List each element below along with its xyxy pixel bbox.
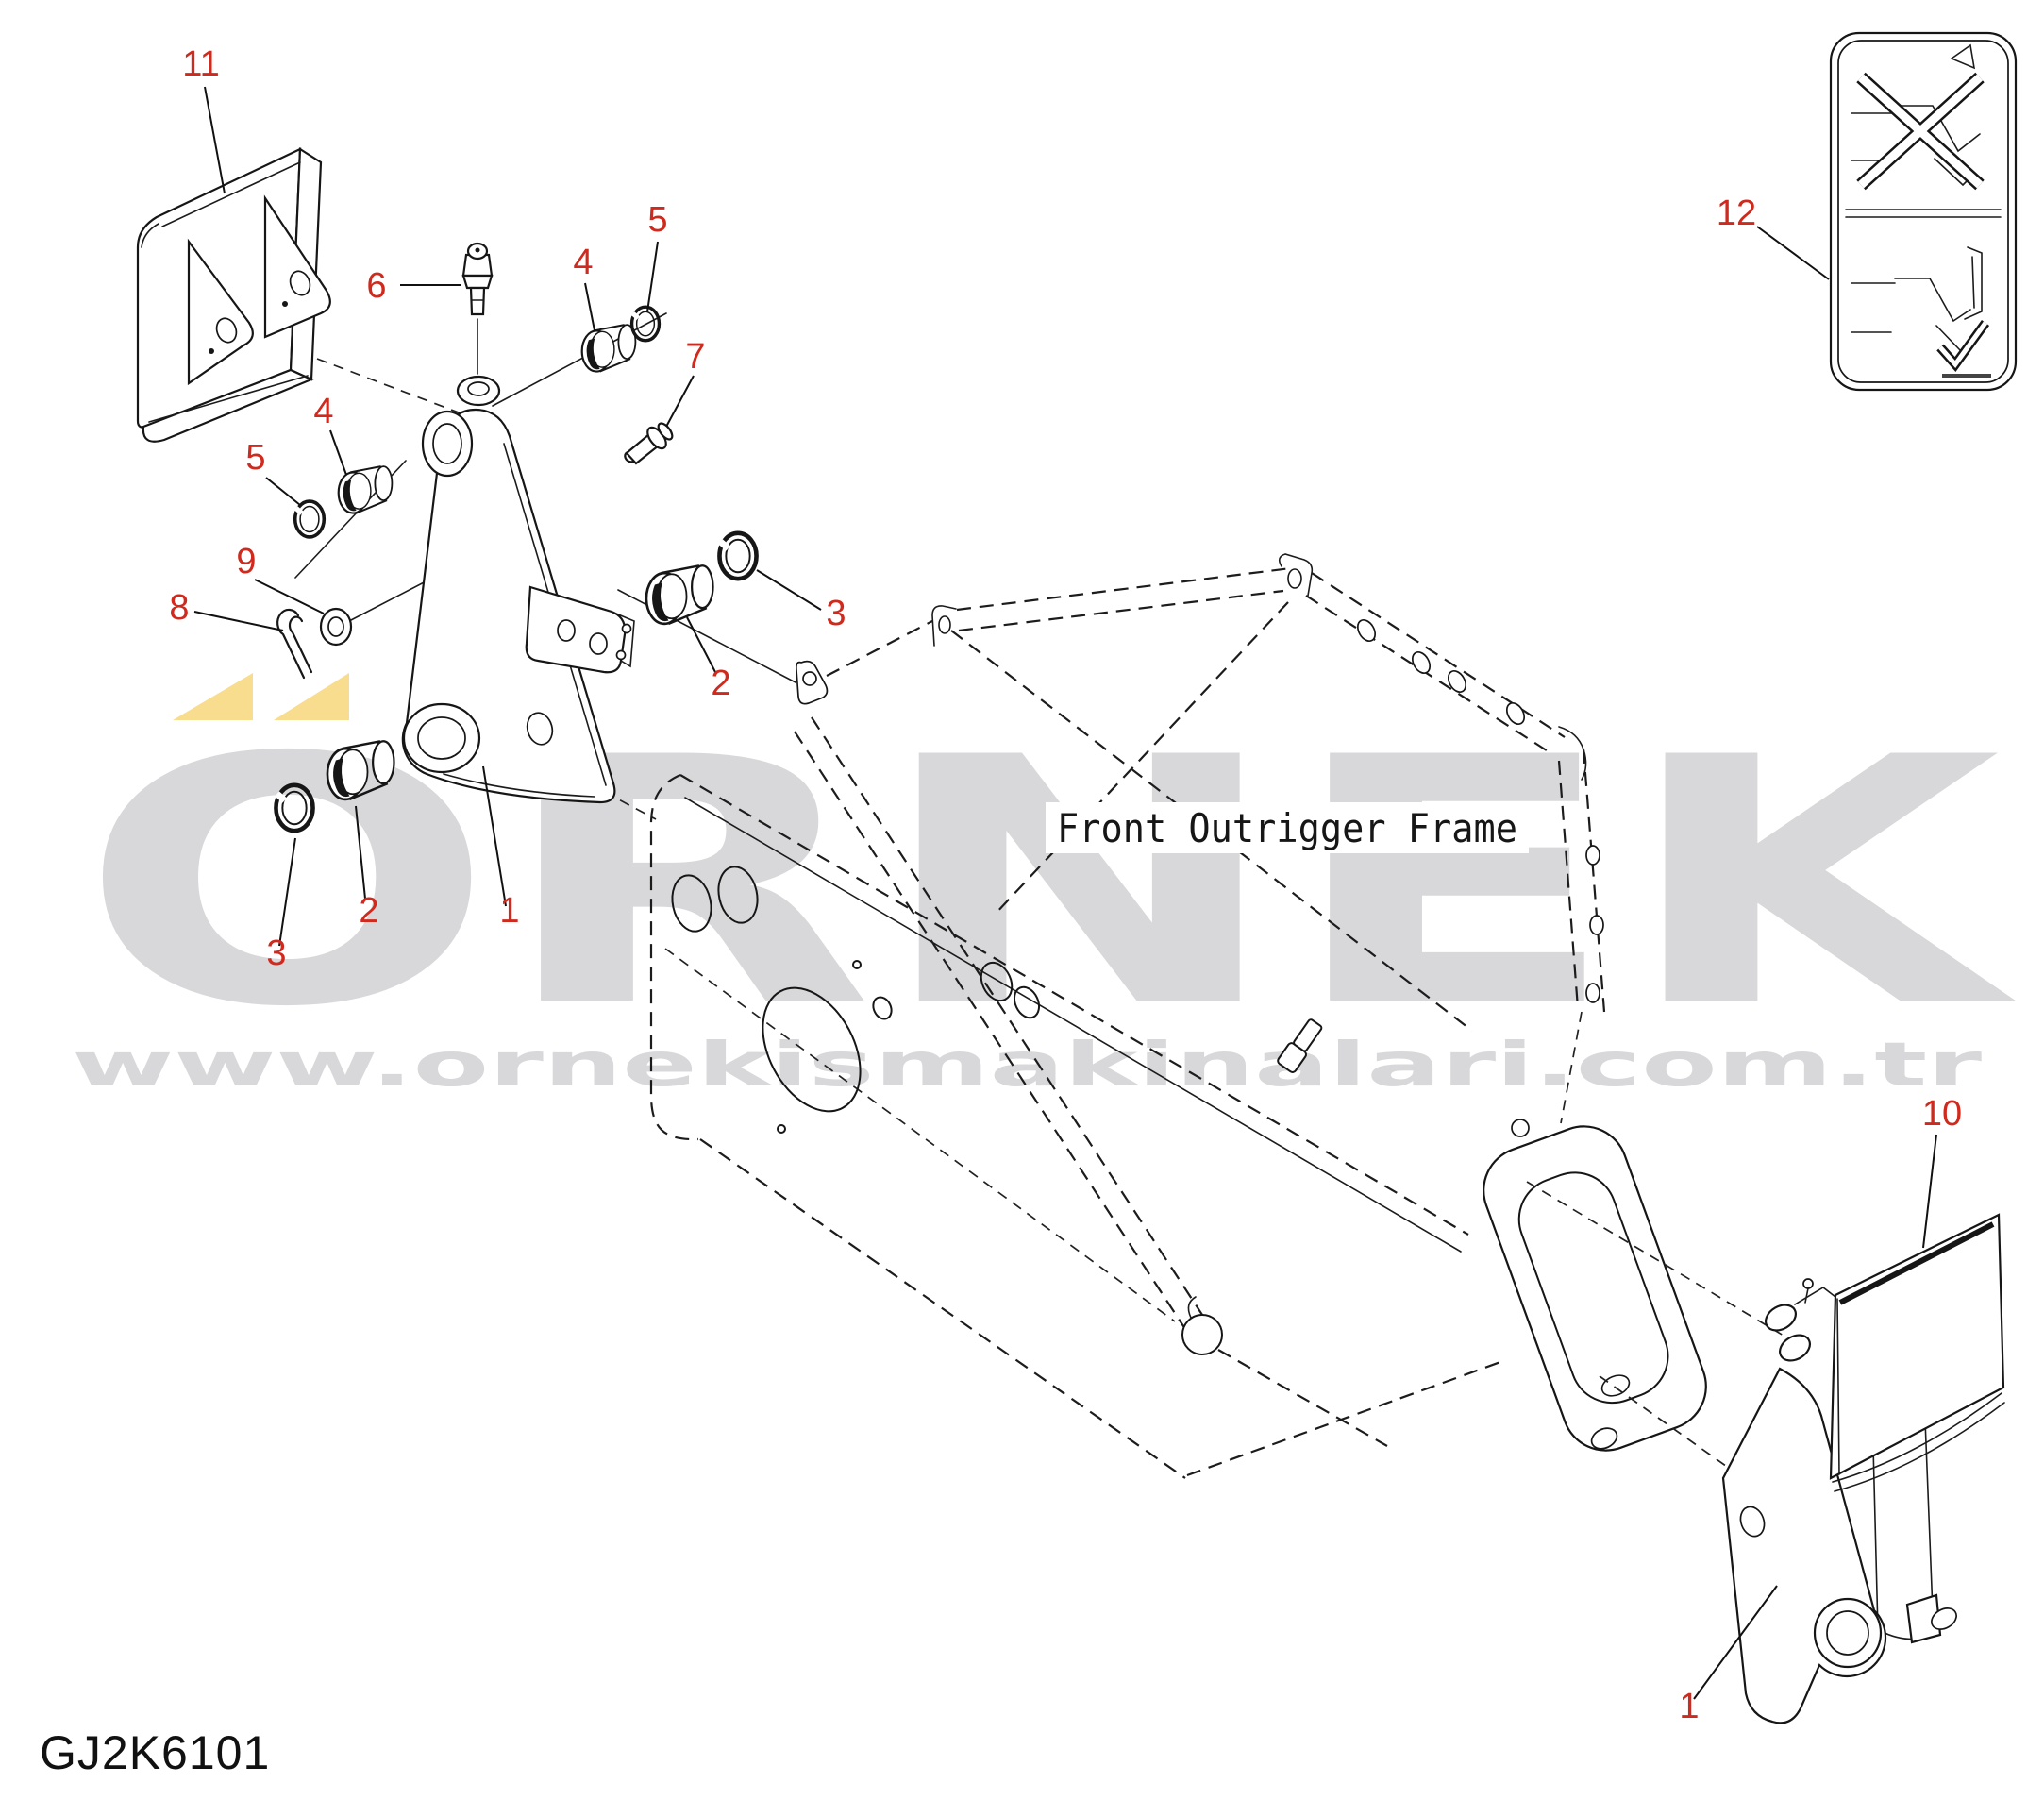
callout-9: 9 (236, 542, 256, 581)
callout-8: 8 (169, 588, 189, 628)
part-6-grease-fitting (463, 244, 492, 314)
callout-12: 12 (1717, 193, 1756, 233)
callout-3b: 3 (266, 934, 286, 973)
frame-annotation-text: Front Outrigger Frame (1057, 805, 1517, 851)
part-10-pad-plate-assembly (1723, 1215, 2004, 1723)
part-4-bushing (582, 325, 636, 372)
part-2-bushing (646, 565, 713, 624)
callout-3: 3 (826, 594, 846, 633)
part-11-pad-plate (138, 149, 330, 442)
callout-1: 1 (499, 891, 519, 931)
callout-4b: 4 (313, 392, 333, 431)
part-7-pin-bolt (623, 421, 675, 463)
drawing-code-text: GJ2K6101 (40, 1726, 270, 1779)
callout-4: 4 (573, 243, 593, 282)
pad-face (1831, 1215, 2003, 1478)
part-12-warning-decal (1831, 33, 2016, 390)
callout-7: 7 (685, 337, 705, 377)
callout-1b: 1 (1679, 1687, 1699, 1726)
callout-2b: 2 (359, 891, 378, 931)
callout-5b: 5 (245, 438, 265, 478)
frame-lower-bracket (1471, 1114, 1718, 1462)
part-3-ring (719, 533, 756, 579)
arm-clevis (527, 587, 625, 672)
callout-10: 10 (1922, 1094, 1962, 1134)
part-9-washer (321, 609, 351, 645)
part-8-cotter-pin (277, 610, 311, 678)
callout-11: 11 (182, 44, 219, 84)
part-5-ring (295, 501, 325, 537)
parts-diagram-page: ORNEK www.ornekismakinalari.com.tr (0, 0, 2044, 1800)
part-1-outrigger-arm (403, 377, 634, 802)
callout-5: 5 (647, 200, 667, 240)
exploded-parts-diagram: ORNEK www.ornekismakinalari.com.tr (0, 0, 2044, 1800)
callout-6: 6 (366, 266, 386, 306)
watermark-brand-text: ORNEK (78, 685, 2019, 1081)
callout-2: 2 (711, 664, 730, 703)
watermark-url-text: www.ornekismakinalari.com.tr (72, 1031, 1983, 1101)
